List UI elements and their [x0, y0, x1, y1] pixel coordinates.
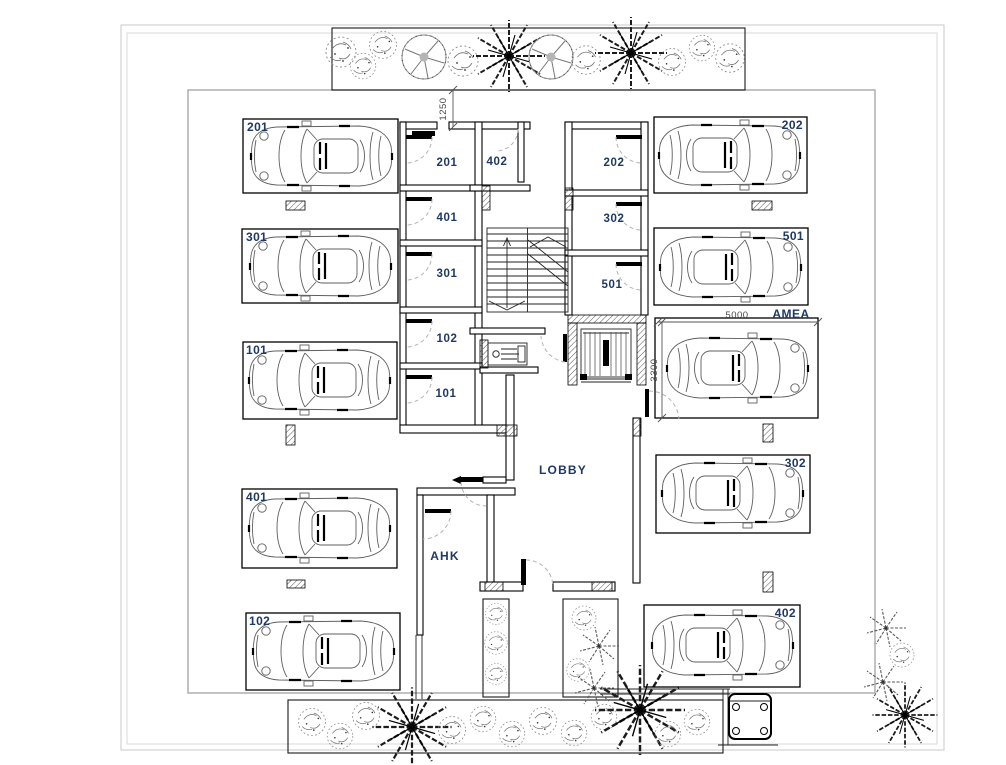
amea-depth-dim: 3300: [649, 358, 660, 381]
storage-label: 402: [487, 156, 508, 168]
equipment-pad: [729, 694, 771, 739]
car-top-view: [659, 120, 800, 190]
storage-label: 201: [437, 157, 458, 169]
amea-label: AMEA: [772, 307, 809, 321]
parking-label: 401: [246, 490, 267, 504]
car-top-view: [667, 333, 808, 403]
bush-icon: [350, 53, 376, 79]
bush-icon: [561, 720, 587, 746]
entry-width-dim: 1250: [438, 97, 449, 120]
parking-label: 501: [783, 229, 804, 243]
storage-label: 501: [602, 279, 623, 291]
floor-plan-canvas: 201 301 101 401 102 202 501 302 402: [0, 0, 1006, 765]
wheelchair-lift: [480, 340, 527, 368]
parking-label: 402: [775, 606, 796, 620]
parking-label: 302: [785, 456, 806, 470]
bush-icon: [567, 659, 590, 682]
bush-icon: [448, 46, 478, 76]
parking-label: 102: [249, 614, 270, 628]
car-top-view: [249, 345, 390, 415]
floor-plan: 201 301 101 401 102 202 501 302 402: [0, 0, 1006, 765]
storage-label: 202: [604, 157, 625, 169]
parking-label: 202: [782, 118, 803, 132]
bush-icon: [439, 717, 466, 744]
bush-icon: [327, 723, 353, 749]
bush-icon: [572, 606, 596, 630]
bush-icon: [890, 643, 914, 667]
bush-icon: [689, 35, 715, 61]
fern-icon: [867, 609, 906, 647]
bush-icon: [326, 37, 356, 67]
car-top-view: [251, 121, 392, 191]
car-top-view: [652, 610, 793, 680]
palm-icon: [873, 683, 938, 748]
planting-beds-bottom: [288, 599, 937, 765]
car-top-view: [253, 616, 394, 686]
parking-label: 101: [246, 343, 267, 357]
storage-label: 102: [437, 333, 458, 345]
storage-label: 401: [437, 212, 458, 224]
amea-width-dim: 5000: [725, 310, 748, 321]
parking-spots: 201 301 101 401 102 202 501 302 402: [242, 117, 818, 690]
ahk-label: AHK: [430, 549, 460, 563]
bush-icon: [530, 708, 557, 735]
staircase: [487, 228, 568, 312]
elevator-door-icon: [603, 340, 609, 366]
car-top-view: [662, 458, 803, 528]
bush-icon: [716, 44, 745, 73]
planting-strip-top: [326, 17, 745, 92]
car-top-view: [250, 231, 391, 301]
plot-boundary-lines: [121, 25, 944, 750]
palm-icon: [595, 665, 685, 755]
bush-icon: [485, 632, 508, 655]
car-top-view: [249, 493, 390, 563]
bush-icon: [486, 604, 507, 625]
parking-label: 301: [246, 230, 267, 244]
elevator: [568, 315, 646, 385]
palm-icon: [473, 20, 545, 92]
car-top-view: [660, 232, 801, 302]
bush-icon: [353, 703, 380, 730]
parking-label: 201: [247, 120, 268, 134]
building-outline: [188, 90, 875, 693]
storage-label: 101: [436, 388, 457, 400]
storage-label: 302: [604, 213, 625, 225]
bush-icon: [370, 32, 397, 59]
bush-icon: [299, 709, 326, 736]
bush-icon: [470, 706, 496, 732]
bush-icon: [659, 49, 686, 76]
storage-label: 301: [437, 268, 458, 280]
bush-icon: [486, 664, 507, 685]
tree-icon: [402, 35, 446, 79]
tree-icon: [529, 35, 573, 79]
fern-icon: [580, 627, 619, 665]
lobby-label: LOBBY: [539, 463, 587, 477]
bush-icon: [572, 46, 601, 75]
fern-icon: [864, 663, 903, 701]
bush-icon: [684, 709, 710, 735]
bush-icon: [499, 721, 525, 747]
